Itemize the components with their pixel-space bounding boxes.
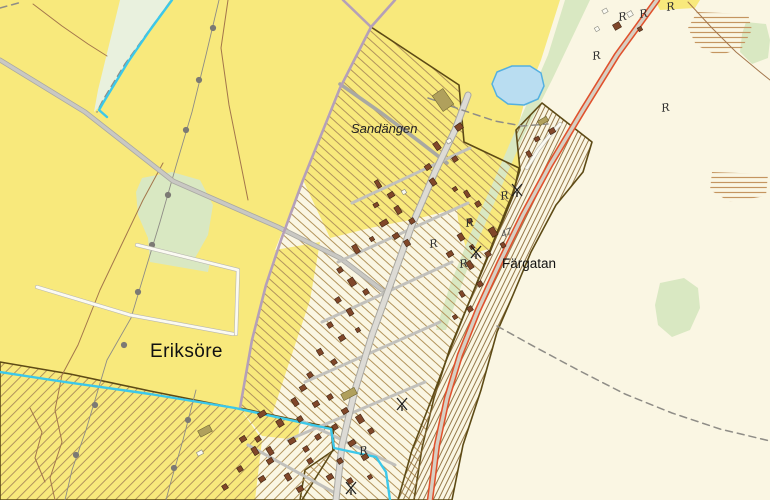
- map-canvas[interactable]: RRRRRRRRRR Eriksöre Sandängen Färgatan 4…: [0, 0, 770, 500]
- green-blob-east: [655, 278, 700, 337]
- farmland-northeast-wedge: [655, 0, 700, 10]
- boundary-marker-dot: [121, 342, 127, 348]
- boundary-marker-dot: [185, 417, 191, 423]
- label-field-sandangen: Sandängen: [351, 121, 418, 136]
- building: [627, 11, 634, 18]
- boundary-marker-dot: [135, 289, 141, 295]
- building: [594, 26, 599, 31]
- boundary-marker-dot: [210, 25, 216, 31]
- boundary-marker-dot: [73, 452, 79, 458]
- topographic-map: RRRRRRRRRR: [0, 0, 770, 500]
- boundary-marker-dot: [196, 77, 202, 83]
- boundary-marker-dot: [165, 192, 171, 198]
- footpath: [497, 326, 770, 441]
- boundary-marker-dot: [171, 465, 177, 471]
- ancient-monument-icon: R: [659, 101, 670, 115]
- boundary-marker-dot: [92, 402, 98, 408]
- ancient-monument-icon: R: [590, 49, 601, 63]
- boundary-marker-dot: [183, 127, 189, 133]
- building: [602, 8, 608, 14]
- label-settlement-eriksore: Eriksöre: [150, 341, 223, 363]
- label-street-fargatan: Färgatan: [502, 256, 556, 271]
- wetland-northeast-2: [710, 172, 768, 202]
